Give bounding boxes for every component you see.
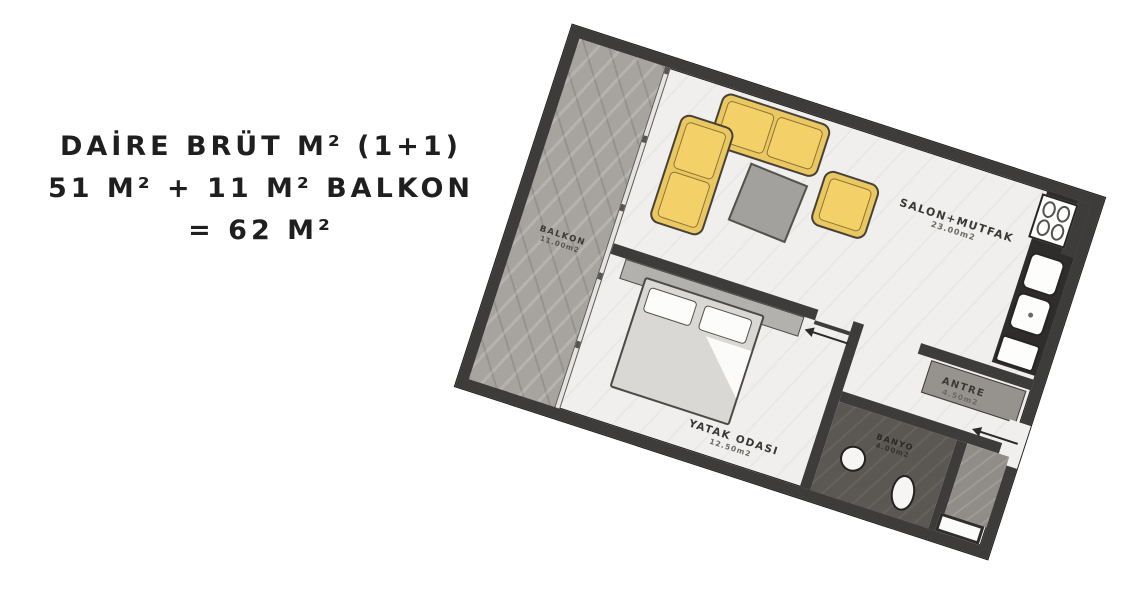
headline-line-3: = 62 M² (22, 210, 500, 252)
burner-icon (1049, 222, 1067, 242)
pillow (642, 287, 698, 327)
burner-icon (1040, 200, 1058, 220)
headline-line-1: DAİRE BRÜT M² (1+1) (22, 126, 500, 168)
salon-label: SALON+MUTFAK 23.00m2 (881, 191, 1030, 258)
page: DAİRE BRÜT M² (1+1) 51 M² + 11 M² BALKON… (0, 0, 1140, 600)
blanket-fold (690, 336, 751, 398)
floor-plan: BALKON 11.00m2 SALON+MUTFAK 23.00m2 (455, 25, 1105, 559)
bedroom-label: YATAK ODASI 12.50m2 (648, 406, 816, 479)
sofa-cushion (817, 177, 872, 232)
coffee-table (728, 163, 809, 244)
headline: DAİRE BRÜT M² (1+1) 51 M² + 11 M² BALKON… (22, 126, 500, 252)
sofa-cushion (765, 116, 824, 171)
armchair (809, 168, 882, 241)
burner-icon (1055, 204, 1073, 224)
burner-icon (1034, 218, 1052, 238)
drain-icon (1027, 311, 1033, 317)
sofa-cushion (672, 121, 727, 180)
headline-line-2: 51 M² + 11 M² BALKON (22, 168, 500, 210)
sofa-cushion (656, 170, 711, 229)
sofa-two-seat-left (648, 112, 736, 238)
